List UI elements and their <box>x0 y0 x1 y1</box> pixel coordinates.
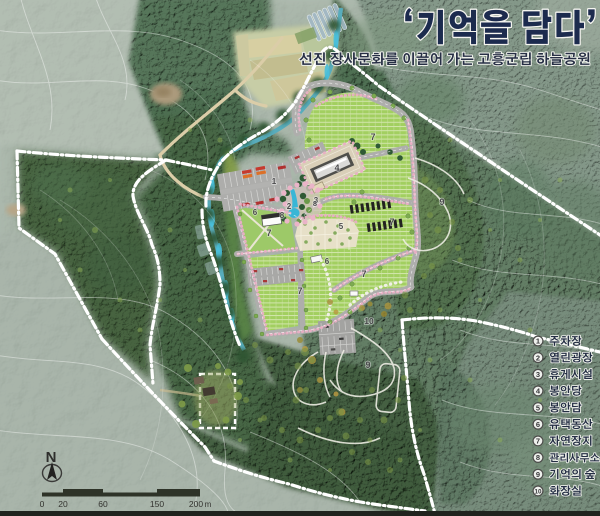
svg-text:60: 60 <box>98 499 108 509</box>
svg-text:3: 3 <box>536 370 540 379</box>
svg-text:10: 10 <box>364 316 374 326</box>
svg-text:6: 6 <box>253 208 258 217</box>
svg-text:m: m <box>205 500 212 509</box>
svg-text:1: 1 <box>272 177 277 186</box>
svg-text:7: 7 <box>370 132 375 142</box>
svg-text:6: 6 <box>536 420 540 429</box>
svg-text:150: 150 <box>150 499 164 509</box>
svg-text:7: 7 <box>536 437 540 446</box>
svg-text:2: 2 <box>536 353 540 362</box>
svg-text:200: 200 <box>189 499 203 509</box>
svg-text:2: 2 <box>287 202 292 211</box>
svg-text:N: N <box>46 449 57 466</box>
svg-text:6: 6 <box>325 257 330 266</box>
svg-text:20: 20 <box>58 499 68 509</box>
svg-text:0: 0 <box>40 499 45 509</box>
svg-text:7: 7 <box>297 286 302 296</box>
svg-text:8: 8 <box>280 211 285 220</box>
svg-text:4: 4 <box>334 163 339 173</box>
svg-text:7: 7 <box>361 269 366 279</box>
svg-text:9: 9 <box>439 197 444 207</box>
svg-text:9: 9 <box>536 470 540 479</box>
svg-text:7: 7 <box>266 228 271 238</box>
svg-text:8: 8 <box>536 453 540 462</box>
svg-text:1: 1 <box>536 337 540 346</box>
svg-text:10: 10 <box>534 489 542 496</box>
svg-text:9: 9 <box>365 360 370 370</box>
svg-text:5: 5 <box>339 222 344 231</box>
svg-text:8: 8 <box>313 199 317 208</box>
svg-text:7: 7 <box>389 217 394 227</box>
svg-text:5: 5 <box>536 403 540 412</box>
